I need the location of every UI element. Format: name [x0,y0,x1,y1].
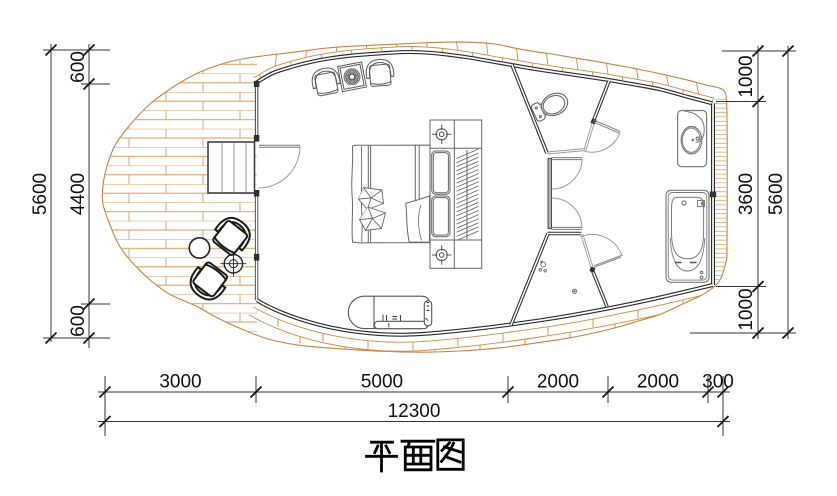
svg-text:12300: 12300 [388,401,441,422]
svg-text:600: 600 [68,305,89,337]
svg-text:5600: 5600 [766,173,787,215]
svg-text:1000: 1000 [736,55,757,97]
svg-text:5000: 5000 [361,372,403,393]
svg-text:4400: 4400 [68,173,89,215]
svg-text:2000: 2000 [537,372,579,393]
svg-text:2000: 2000 [637,372,679,393]
svg-text:600: 600 [68,51,89,83]
svg-text:300: 300 [702,372,734,393]
svg-text:5600: 5600 [30,173,51,215]
svg-text:1000: 1000 [736,288,757,330]
svg-text:3000: 3000 [159,372,201,393]
svg-text:3600: 3600 [736,173,757,215]
